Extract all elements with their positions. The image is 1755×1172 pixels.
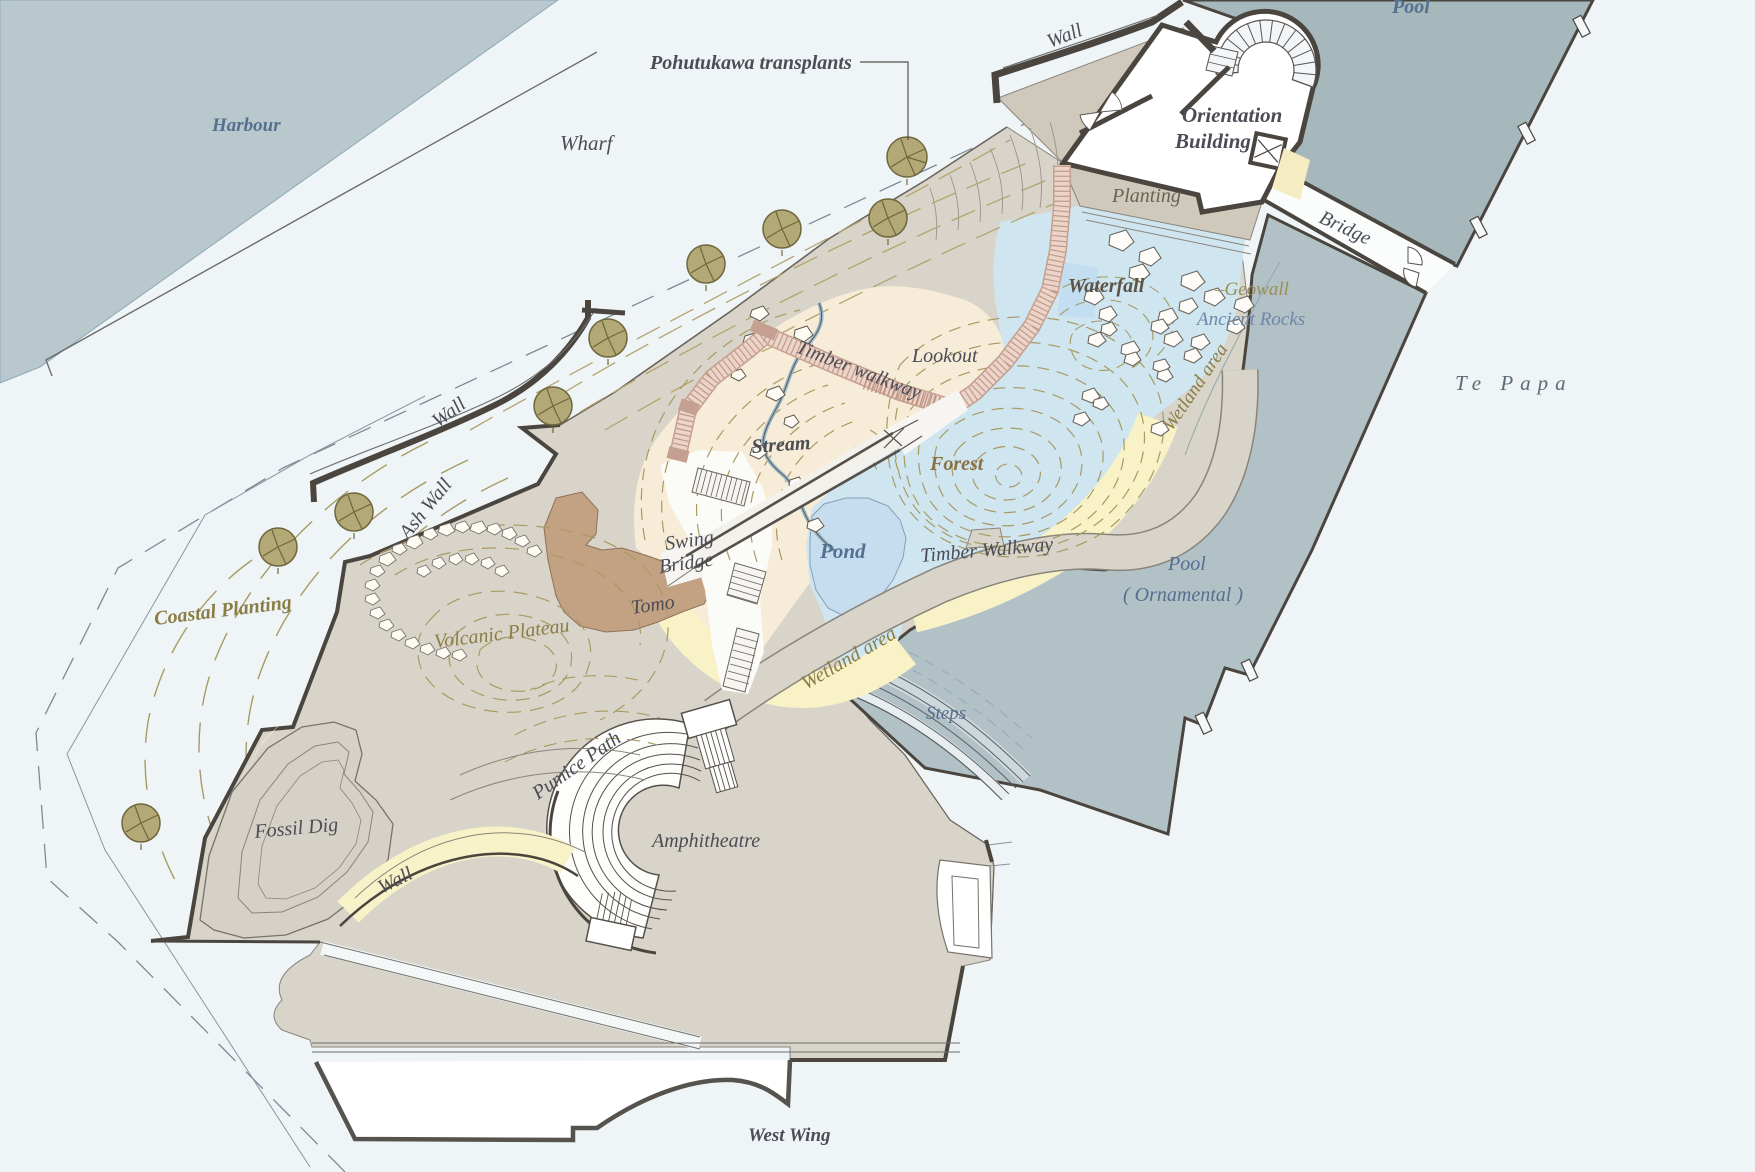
svg-text:Amphitheatre: Amphitheatre [650,830,760,852]
svg-text:Steps: Steps [926,703,966,724]
svg-text:Forest: Forest [929,453,985,475]
svg-text:Planting: Planting [1111,185,1181,207]
svg-text:Harbour: Harbour [211,115,281,136]
svg-text:Ancient Rocks: Ancient Rocks [1195,309,1305,330]
svg-text:Pohutukawa transplants: Pohutukawa transplants [649,52,852,74]
svg-text:( Ornamental ): ( Ornamental ) [1123,584,1243,606]
svg-text:Pool: Pool [1391,0,1430,18]
svg-text:–Geowall: –Geowall [1214,279,1289,300]
svg-text:Orientation: Orientation [1182,103,1282,127]
svg-text:Pool: Pool [1167,553,1206,575]
svg-text:Waterfall: Waterfall [1068,275,1145,297]
svg-text:Stream: Stream [751,432,811,458]
svg-text:West Wing: West Wing [748,1125,831,1146]
svg-text:Wharf: Wharf [560,131,616,155]
svg-text:Building: Building [1174,129,1251,153]
svg-text:Pond: Pond [819,539,866,563]
svg-text:Lookout: Lookout [911,345,978,367]
svg-text:Te Papa: Te Papa [1455,371,1573,395]
